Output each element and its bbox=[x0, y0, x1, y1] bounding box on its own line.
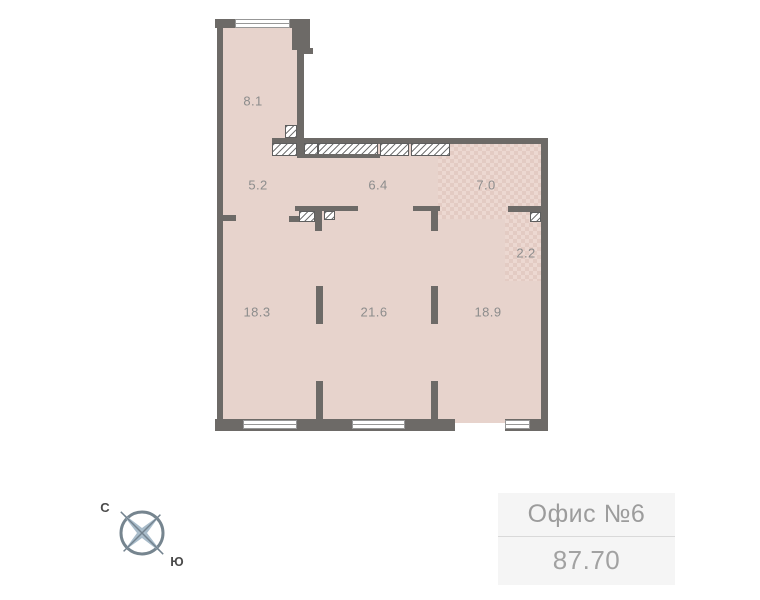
wall-column-corner bbox=[292, 19, 310, 50]
wall-divider-2-upper bbox=[431, 286, 438, 324]
partition-hatched-duct bbox=[285, 125, 297, 138]
room-label-2-2: 2.2 bbox=[516, 246, 535, 261]
wall-left bbox=[217, 19, 223, 431]
room-label-8-1: 8.1 bbox=[243, 94, 262, 109]
partition-hatched-right-duct bbox=[530, 212, 541, 222]
compass-icon: С Ю bbox=[97, 488, 187, 578]
window-bottom-right bbox=[505, 420, 530, 429]
wall-mid-stub bbox=[315, 211, 322, 231]
room-label-18-9: 18.9 bbox=[475, 305, 502, 320]
office-info-card: Офис №6 87.70 bbox=[498, 493, 675, 585]
compass-north-label: С bbox=[100, 500, 110, 515]
window-top bbox=[235, 19, 290, 28]
wall-divider-1-upper bbox=[316, 286, 323, 324]
partition-hatched-5 bbox=[411, 143, 450, 156]
office-area-value: 87.70 bbox=[498, 537, 675, 584]
partition-hatched-mid-a bbox=[299, 211, 315, 222]
entrance-threshold bbox=[455, 419, 505, 423]
partition-hatched-1 bbox=[272, 143, 297, 156]
room-label-18-3: 18.3 bbox=[244, 305, 271, 320]
office-title: Офис №6 bbox=[498, 493, 675, 537]
compass: С Ю bbox=[97, 488, 187, 578]
room-label-5-2: 5.2 bbox=[248, 178, 267, 193]
wall-midright-stub bbox=[431, 206, 438, 231]
room-label-21-6: 21.6 bbox=[361, 305, 388, 320]
floor-plan-page: { "plan": { "rooms": [ {"name": "room-8-… bbox=[0, 0, 760, 600]
wall-left-stub bbox=[223, 215, 236, 221]
room-label-7-0: 7.0 bbox=[476, 178, 495, 193]
wall-divider-2-lower bbox=[431, 381, 438, 419]
compass-south-label: Ю bbox=[170, 554, 183, 569]
wall-divider-1-lower bbox=[316, 381, 323, 419]
partition-hatched-4 bbox=[380, 143, 409, 156]
floor-plan: 8.1 5.2 6.4 7.0 2.2 18.3 21.6 18.9 bbox=[0, 0, 760, 470]
wall-band-bottom-edge bbox=[297, 154, 380, 158]
partition-hatched-mid-b bbox=[324, 211, 335, 220]
window-bottom-left bbox=[243, 420, 297, 429]
wall-right bbox=[541, 138, 548, 431]
room-label-6-4: 6.4 bbox=[368, 178, 387, 193]
window-bottom-middle bbox=[352, 420, 405, 429]
